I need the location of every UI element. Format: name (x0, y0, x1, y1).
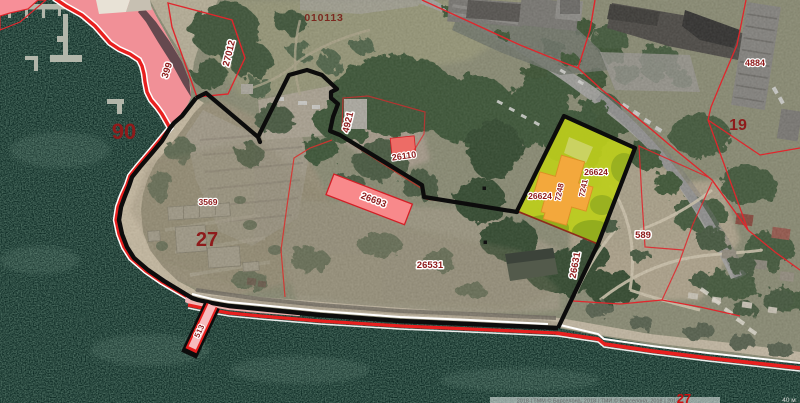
svg-text:90: 90 (112, 119, 136, 144)
svg-text:26531: 26531 (417, 260, 444, 271)
svg-text:3569: 3569 (199, 197, 218, 207)
svg-text:010113: 010113 (304, 12, 343, 24)
svg-text:26624: 26624 (528, 191, 552, 201)
svg-text:27: 27 (677, 391, 691, 403)
svg-text:40 м: 40 м (782, 397, 796, 403)
svg-text:589: 589 (635, 230, 651, 241)
svg-text:4884: 4884 (745, 58, 765, 68)
svg-text:19: 19 (729, 117, 747, 134)
svg-text:27: 27 (196, 229, 218, 251)
svg-text:2018 | TMM © Барселона, 2018 |: 2018 | TMM © Барселона, 2018 | ТМИ © Бар… (517, 398, 680, 403)
svg-text:26624: 26624 (584, 167, 608, 177)
